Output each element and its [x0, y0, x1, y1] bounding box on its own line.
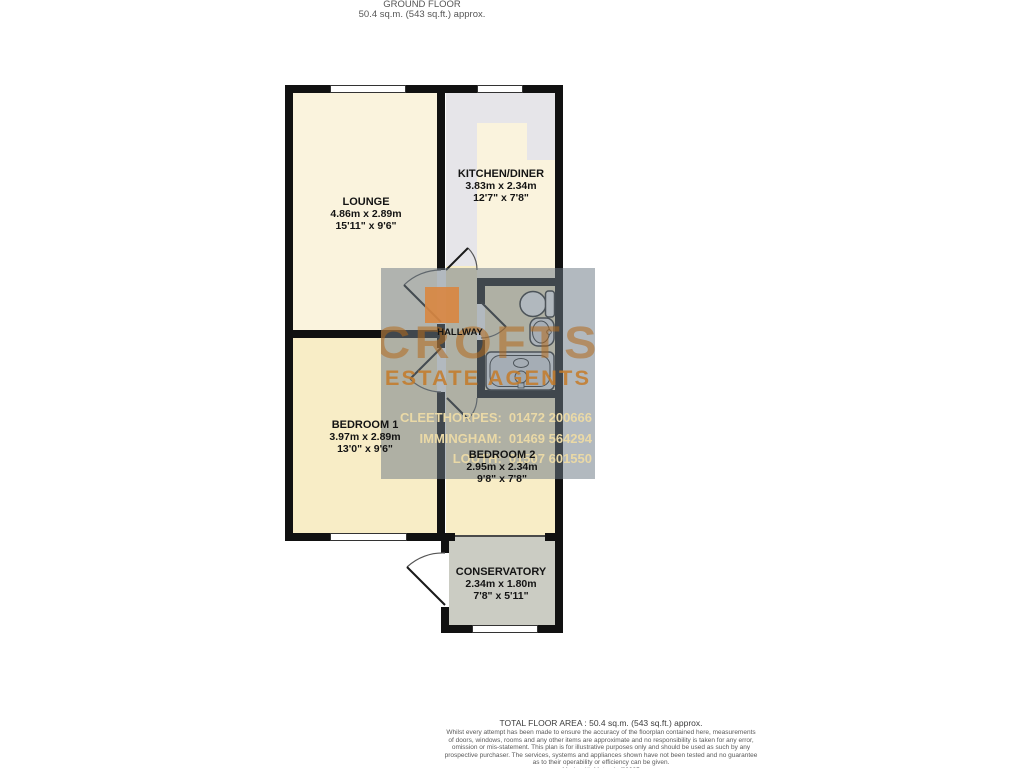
room-name: CONSERVATORY: [456, 566, 546, 578]
room-imperial: 7'8" x 5'11": [456, 590, 546, 602]
room-imperial: 15'11" x 9'6": [330, 220, 401, 232]
room-name: LOUNGE: [330, 196, 401, 208]
room-imperial: 9'8" x 7'8": [466, 473, 537, 485]
room-metric: 3.83m x 2.34m: [458, 180, 544, 192]
room-metric: 3.97m x 2.89m: [329, 431, 400, 443]
door-arc: [407, 553, 445, 605]
room-name: HALLWAY: [437, 327, 483, 338]
room-imperial: 12'7" x 7'8": [458, 192, 544, 204]
room-metric: 4.86m x 2.89m: [330, 208, 401, 220]
office-row: CLEETHORPES: 01472 200666: [384, 408, 592, 429]
agency-watermark: CROFTS ESTATE AGENTS CLEETHORPES: 01472 …: [381, 268, 595, 479]
room-name: KITCHEN/DINER: [458, 168, 544, 180]
room-imperial: 13'0" x 9'6": [329, 443, 400, 455]
room-label-bedroom1: BEDROOM 1 3.97m x 2.89m 13'0" x 9'6": [329, 419, 400, 455]
room-name: BEDROOM 2: [466, 449, 537, 461]
room-metric: 2.95m x 2.34m: [466, 461, 537, 473]
agency-name: CROFTS: [381, 320, 595, 365]
floorplan: GROUND FLOOR 50.4 sq.m. (543 sq.ft.) app…: [0, 0, 1024, 768]
room-label-bedroom2: BEDROOM 2 2.95m x 2.34m 9'8" x 7'8": [466, 449, 537, 485]
room-label-conservatory: CONSERVATORY 2.34m x 1.80m 7'8" x 5'11": [456, 566, 546, 602]
room-name: BEDROOM 1: [329, 419, 400, 431]
room-metric: 2.34m x 1.80m: [456, 578, 546, 590]
office-phone: 01469 564294: [502, 429, 592, 450]
office-name: CLEETHORPES:: [400, 408, 502, 429]
room-label-lounge: LOUNGE 4.86m x 2.89m 15'11" x 9'6": [330, 196, 401, 232]
door-arc: [446, 248, 477, 270]
room-label-kitchen: KITCHEN/DINER 3.83m x 2.34m 12'7" x 7'8": [458, 168, 544, 204]
room-label-hallway: HALLWAY: [437, 327, 483, 338]
agency-subtitle: ESTATE AGENTS: [381, 368, 595, 390]
office-row: IMMINGHAM: 01469 564294: [384, 429, 592, 450]
office-name: IMMINGHAM:: [420, 429, 502, 450]
office-phone: 01472 200666: [502, 408, 592, 429]
